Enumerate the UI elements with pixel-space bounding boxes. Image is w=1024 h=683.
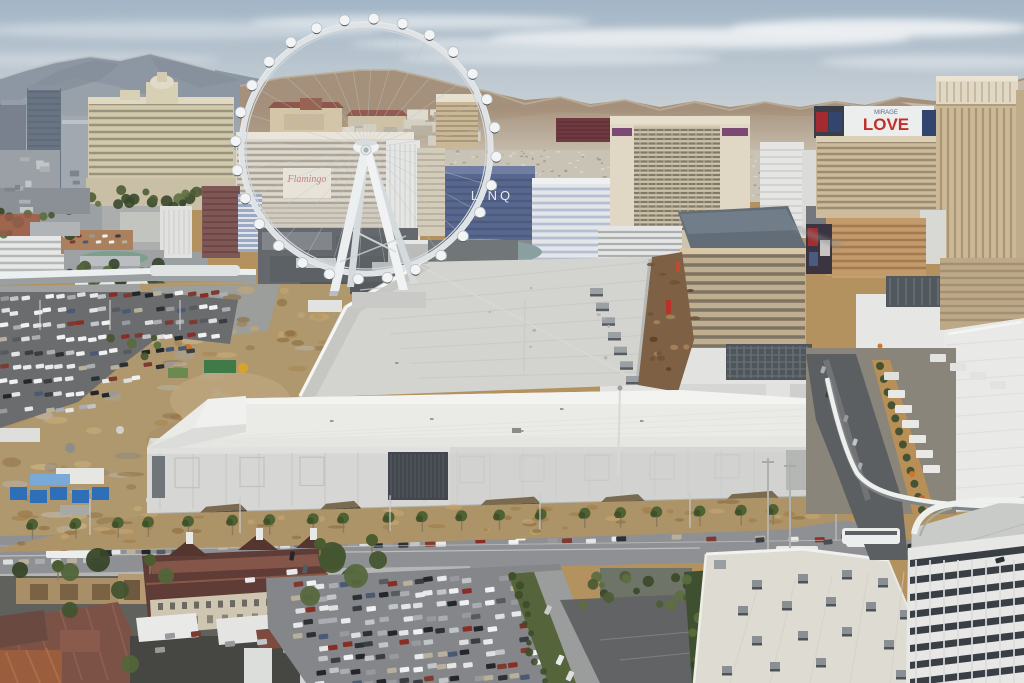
svg-text:LOVE: LOVE	[863, 115, 909, 134]
svg-text:Flamingo: Flamingo	[287, 174, 327, 185]
svg-text:MIRAGE: MIRAGE	[874, 110, 898, 116]
